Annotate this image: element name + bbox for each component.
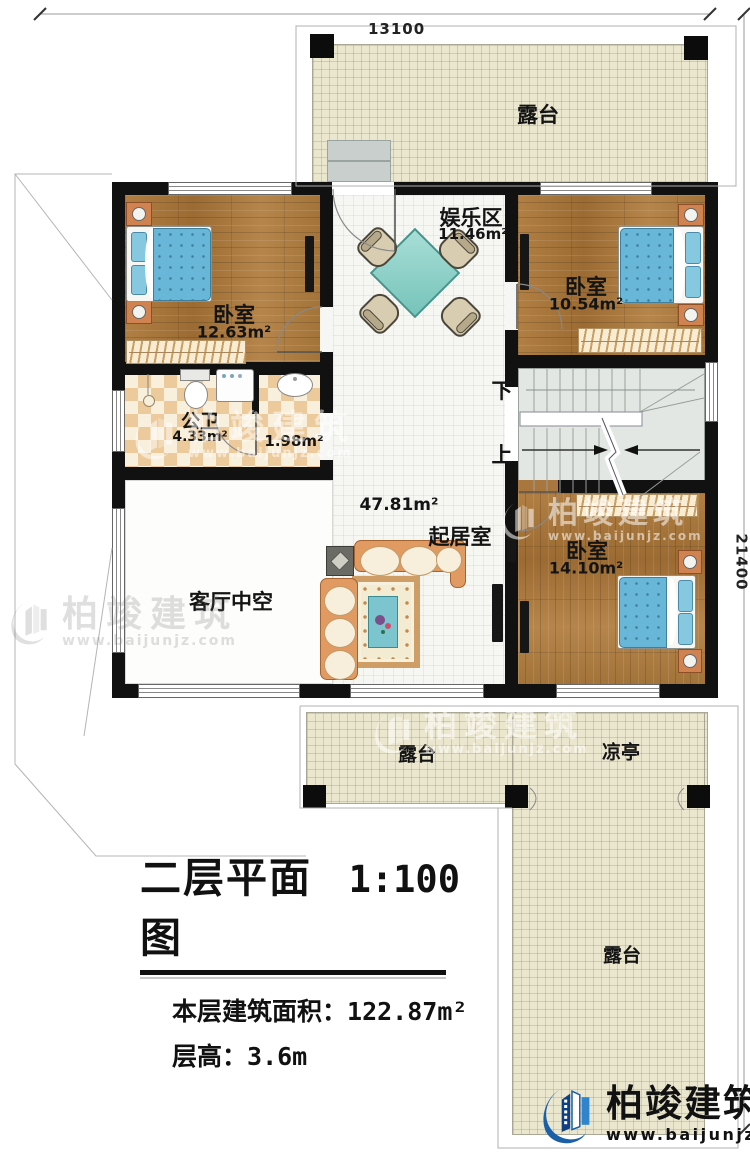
wall	[112, 467, 333, 480]
sink-icon	[277, 373, 313, 397]
window	[168, 182, 292, 195]
room-label-living: 起居室	[429, 521, 492, 551]
nightstand-icon	[678, 204, 704, 226]
tv-icon	[492, 584, 503, 642]
floor-height-value: 3.6m	[247, 1042, 307, 1071]
wardrobe-icon	[576, 494, 698, 517]
room-area-entertainment: 11.46m²	[438, 225, 508, 243]
room-area-bathroom: 4.33m²	[172, 429, 227, 445]
nightstand-icon	[678, 649, 702, 673]
room-area-bedroom1: 12.63m²	[197, 323, 271, 342]
room-area-bedroom3: 14.10m²	[549, 559, 623, 578]
company-logo: 柏竣建筑 www.baijunjz.com	[538, 1084, 750, 1144]
nightstand-icon	[126, 202, 152, 226]
door-opening	[320, 307, 333, 352]
window	[705, 362, 718, 422]
drawing-title: 二层平面图	[140, 844, 327, 964]
column	[303, 785, 326, 808]
toilet-icon	[184, 381, 208, 409]
wardrobe-icon	[578, 328, 702, 353]
wall	[320, 362, 333, 413]
bed-icon	[618, 226, 704, 304]
column	[684, 36, 708, 60]
terrace-right-floor	[512, 712, 705, 1135]
wall	[558, 480, 718, 493]
company-logo-icon	[538, 1084, 600, 1144]
wall	[505, 355, 718, 368]
room-area-living: 47.81m²	[360, 495, 439, 515]
dimension-top: 13100	[368, 20, 425, 38]
sofa-cushion	[360, 546, 400, 576]
bed-icon	[126, 226, 212, 302]
sofa-cushion	[324, 650, 356, 680]
room-label-pavilion: 凉亭	[602, 738, 640, 765]
stairs-up-label: 上	[492, 439, 513, 469]
watermark-logo-icon	[8, 597, 54, 647]
coffee-table-icon	[368, 596, 398, 648]
title-underline-shadow	[140, 977, 446, 979]
sofa-cushion	[324, 586, 356, 616]
door-opening	[518, 480, 558, 493]
column	[310, 34, 334, 58]
exterior-steps	[327, 161, 391, 182]
stairs-down-label: 下	[492, 375, 513, 405]
title-block: 二层平面图 1:100 本层建筑面积：122.87m² 层高：3.6m	[140, 844, 460, 1073]
wall	[505, 480, 518, 698]
window	[112, 508, 125, 653]
wardrobe-icon	[126, 340, 246, 364]
floor-plan: 13100 21400 露台 卧室 12.63m² 娱乐区 11.46m² 卧室…	[0, 0, 750, 1160]
sofa-cushion	[324, 618, 356, 648]
window	[112, 390, 125, 452]
window	[350, 684, 484, 698]
room-label-terrace-right: 露台	[603, 941, 641, 968]
tv-cabinet-icon	[507, 536, 516, 562]
toilet-icon	[180, 369, 210, 381]
company-website: www.baijunjz.com	[606, 1127, 750, 1143]
floor-area-value: 122.87m²	[347, 997, 467, 1026]
nightstand-icon	[126, 300, 152, 324]
nightstand-icon	[678, 550, 702, 574]
wall	[320, 182, 333, 307]
dimension-right: 21400	[733, 533, 750, 590]
drawing-scale: 1:100	[349, 858, 460, 901]
room-area-bedroom2: 10.54m²	[549, 295, 623, 314]
column	[687, 785, 710, 808]
room-label-terrace-top: 露台	[517, 99, 559, 129]
nightstand-icon	[678, 304, 704, 326]
window	[540, 182, 652, 195]
tv-icon	[520, 234, 529, 290]
tv-icon	[305, 236, 314, 292]
stairs-floor	[518, 368, 705, 493]
room-label-terrace-bottom: 露台	[398, 740, 436, 767]
room-label-void: 客厅中空	[189, 586, 273, 616]
wall	[705, 182, 718, 698]
void-floor	[125, 480, 333, 684]
window	[556, 684, 660, 698]
window	[138, 684, 300, 698]
column	[505, 785, 528, 808]
floor-height-label: 层高：	[172, 1042, 247, 1071]
company-name: 柏竣建筑	[606, 1085, 750, 1122]
speaker-icon	[326, 546, 354, 576]
title-underline	[140, 970, 446, 975]
tv-icon	[520, 601, 529, 653]
lamp-icon	[143, 395, 155, 407]
washer-icon	[216, 369, 254, 402]
door-opening	[332, 182, 394, 195]
exterior-steps	[327, 140, 391, 161]
floor-area-label: 本层建筑面积：	[172, 997, 347, 1026]
door-opening	[505, 282, 518, 330]
room-area-wash: 1.98m²	[264, 432, 323, 450]
bed-icon	[617, 575, 696, 649]
